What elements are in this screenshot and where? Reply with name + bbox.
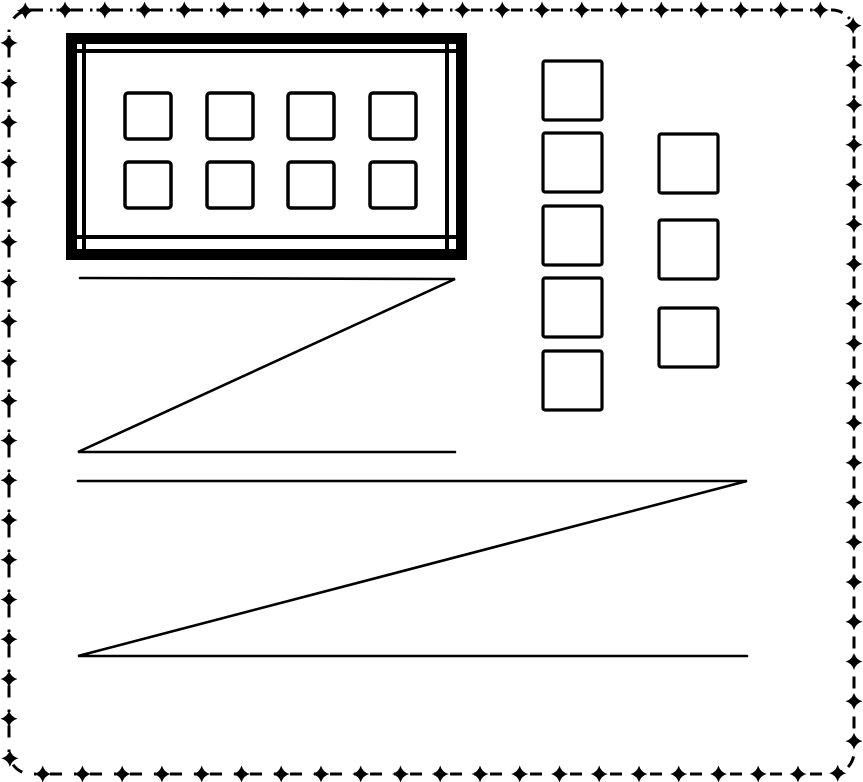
figure-canvas bbox=[0, 0, 863, 782]
figure-page bbox=[0, 0, 863, 782]
figure-background bbox=[0, 0, 863, 782]
